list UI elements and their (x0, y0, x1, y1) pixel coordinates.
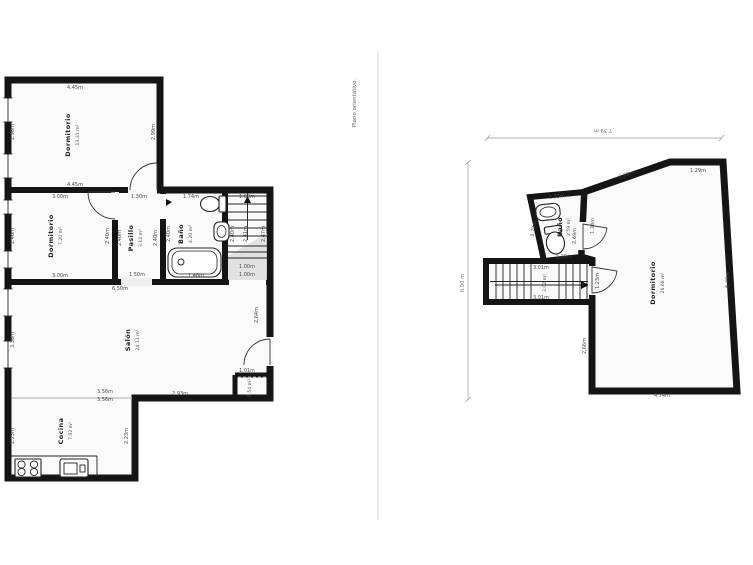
dim-rp-do-left: 2.66m (582, 338, 588, 354)
dim-rp-ba-bottom: 1.36m (556, 253, 573, 260)
room-label-salon: Salón (124, 329, 132, 351)
area-label-rp-bano: 2.59 m² (566, 218, 572, 236)
area-label-pasillo: 3.12 m² (138, 229, 144, 247)
window (4, 154, 13, 178)
dim-co-left: 2.23m (10, 428, 16, 444)
dim-rp-door1: 2.69m (572, 228, 579, 244)
right-plan: 7.39 m 6.90 m 3 (460, 127, 737, 402)
dim-sa-bottom: 2.93m (172, 391, 188, 397)
rp-dormitorio-outline (581, 162, 737, 391)
area-label-closet: 0.54 m² (247, 379, 253, 397)
room-label-rp-bano: Baño (556, 217, 564, 237)
area-label-rp-dormitorio: 26.68 m² (660, 272, 666, 293)
room-label-cocina: Cocina (57, 418, 65, 445)
dim-d2-left: 2.40m (10, 228, 16, 244)
dim-pa-left: 2.40m (117, 230, 123, 246)
dim-rp-width: 7.39 m (594, 127, 612, 133)
left-plan: Dormitorio 13.31 m² 4.45m 4.45m 2.96m 2.… (4, 80, 275, 478)
dim-pa-top: 1.30m (131, 194, 147, 200)
window (4, 200, 13, 214)
dim-rp-do-bottom: 4.74m (654, 393, 670, 399)
opening-rp-bano-door (577, 222, 587, 250)
dim-sa-right: 2.64m (254, 307, 260, 323)
dim-rp-door2: 1.23m (595, 273, 601, 289)
dim-st-b1: 1.00m (239, 264, 255, 270)
sink-icon (214, 222, 229, 241)
dim-sa-w1: 3.56m (97, 389, 113, 395)
dim-rp-do-topright: 1.29m (690, 168, 706, 174)
dim-d1-left: 2.96m (10, 124, 16, 140)
dim-rp-door1b: 1.34m (590, 218, 597, 234)
dim-st-b2: 1.00m (239, 272, 255, 278)
area-label-rp-stairs: 3.02 m² (542, 274, 548, 292)
dim-st-v1: 2.40m (230, 226, 236, 242)
window (4, 98, 13, 122)
floorplan-sheet: Dormitorio 13.31 m² 4.45m 4.45m 2.96m 2.… (0, 0, 753, 565)
dim-sa-w2: 3.56m (97, 397, 113, 403)
dim-st-v3: 2.47m (261, 226, 267, 242)
stove-icon (15, 459, 41, 477)
dim-co-right: 2.23m (124, 428, 130, 444)
area-label-dormitorio2: 7.20 m² (58, 227, 64, 245)
opening-pasillo-salon (121, 278, 152, 286)
dim-rp-st-bottom: 3.01m (533, 295, 549, 301)
dim-ba-bottom: 1.40m (188, 273, 204, 279)
window (4, 251, 13, 268)
dim-ba-left: 2.40m (166, 226, 172, 242)
dim-rp-st-top: 3.01m (533, 265, 549, 271)
area-label-cocina: 7.92 m² (68, 422, 74, 440)
dim-ba-top: 1.74m (183, 194, 199, 200)
room-label-rp-dormitorio: Dormitorio (649, 261, 657, 305)
opening-bano-door (159, 194, 167, 219)
dim-pa-bottom: 1.50m (129, 272, 145, 278)
area-label-salon: 24.11 m² (135, 329, 141, 350)
kitchen-sink-icon (60, 459, 88, 477)
floorplan-svg: Dormitorio 13.31 m² 4.45m 4.45m 2.96m 2.… (0, 0, 753, 565)
window (4, 289, 13, 316)
dim-d1-top: 4.45m (67, 85, 83, 91)
toilet-icon (201, 196, 227, 212)
dim-st-v2: 2.41m (243, 226, 249, 242)
dim-d1-bottom: 4.45m (67, 182, 83, 188)
room-label-pasillo: Pasillo (127, 224, 135, 251)
dim-st-top: 1.00m (239, 194, 255, 200)
dim-d2-bottom: 3.00m (52, 273, 68, 279)
orientation-caption: Plano orientativo. (352, 79, 358, 128)
dim-d2-right: 2.40m (105, 228, 111, 244)
area-label-bano: 4.20 m² (188, 225, 194, 243)
dim-d2-top: 3.00m (52, 194, 68, 200)
dim-sa-top: 6.50m (112, 286, 128, 292)
dim-rp-do-right: 6.49m (724, 272, 731, 289)
opening-dorm1-door (128, 186, 157, 194)
area-label-dormitorio1: 13.31 m² (75, 124, 81, 145)
dim-closet-width: 1.01m (239, 368, 255, 374)
dim-sa-left: 3.36m (10, 332, 16, 348)
opening-dorm2-door (111, 192, 119, 220)
room-label-dormitorio2: Dormitorio (47, 214, 55, 258)
dim-d1-right: 2.99m (151, 124, 157, 140)
dim-rp-height: 6.90 m (460, 274, 466, 292)
room-label-bano: Baño (177, 224, 185, 244)
dim-pa-right: 2.40m (153, 230, 159, 246)
room-label-dormitorio1: Dormitorio (64, 113, 72, 157)
